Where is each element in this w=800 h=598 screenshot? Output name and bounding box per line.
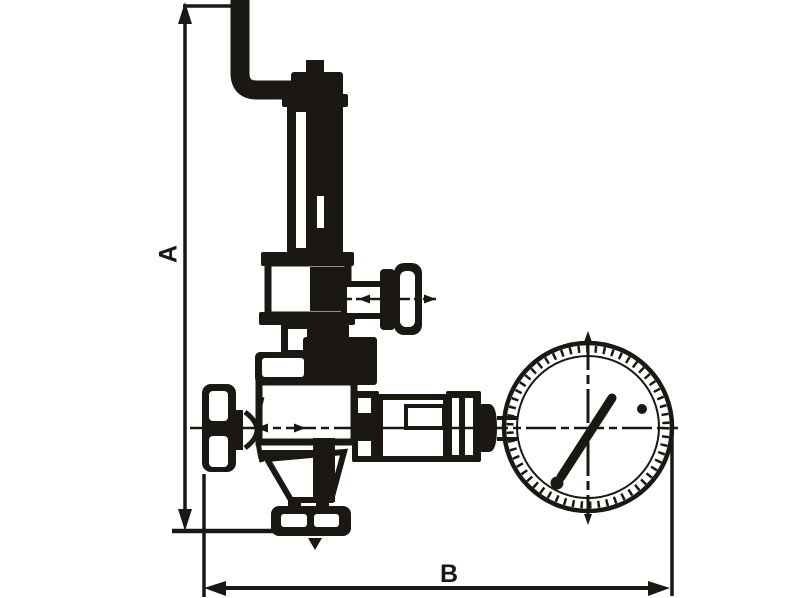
outlet-stem-column bbox=[313, 438, 335, 502]
stem-centerline-arrow-right bbox=[424, 295, 436, 304]
inlet-wheel-window-bottom bbox=[209, 436, 228, 467]
outlet-centerline-tick bbox=[308, 538, 322, 550]
housing-wall bbox=[287, 105, 343, 255]
bonnet-dark-half bbox=[310, 267, 346, 311]
gauge-needle-hub-dot bbox=[551, 477, 564, 490]
dim-b-label: B bbox=[440, 560, 458, 588]
dim-b-arrow-right bbox=[648, 581, 670, 596]
spring-housing bbox=[282, 94, 348, 255]
technical-drawing-page: A B bbox=[0, 0, 800, 598]
inlet-boss-curve bbox=[245, 412, 257, 448]
gauge-dial-dot bbox=[637, 404, 647, 414]
outlet-flange-slot-right bbox=[314, 514, 339, 527]
gauge-connector bbox=[352, 391, 517, 462]
connector-slot-top bbox=[358, 398, 371, 413]
body-shell bbox=[259, 382, 354, 442]
hex-nut bbox=[446, 391, 481, 462]
hex-flat-1 bbox=[452, 398, 459, 455]
body-flange-slot bbox=[262, 358, 304, 377]
housing-highlight bbox=[296, 112, 306, 248]
adjusting-cap bbox=[291, 60, 343, 98]
valve-drawing bbox=[190, 0, 678, 550]
hex-flat-2 bbox=[465, 398, 473, 455]
dim-b-arrow-left bbox=[204, 581, 226, 596]
bonnet-flange bbox=[259, 312, 355, 325]
valve-dimension-drawing: A B bbox=[0, 0, 800, 598]
housing-slot bbox=[317, 196, 324, 228]
gauge-centerline-tick-bottom bbox=[584, 514, 592, 525]
outlet-flange-slot-left bbox=[281, 514, 307, 527]
valve-body-upper bbox=[255, 337, 377, 385]
dim-a-label: A bbox=[155, 245, 183, 263]
gauge-centerline-tick-top bbox=[584, 331, 592, 342]
connector-slot-bottom bbox=[358, 441, 371, 456]
inlet-wheel-window-top bbox=[209, 391, 228, 421]
dim-a-arrow-down bbox=[178, 509, 192, 531]
cap-nub bbox=[306, 60, 324, 74]
impulse-pipe bbox=[240, 0, 297, 90]
